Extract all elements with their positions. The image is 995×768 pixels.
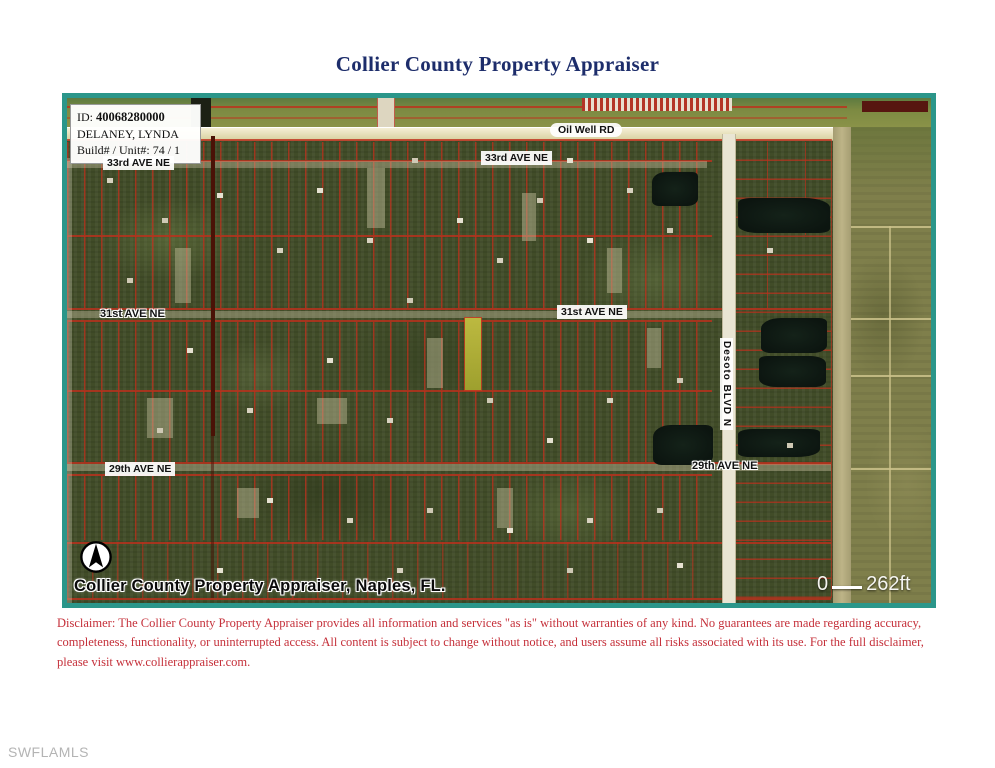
watermark: SWFLAMLS: [8, 744, 89, 760]
disclaimer-text: Disclaimer: The Collier County Property …: [57, 614, 937, 672]
buildings-layer: [67, 98, 73, 103]
field-line: [851, 468, 931, 470]
cleared-lot: [647, 328, 661, 368]
parcel-grid-lines: [67, 476, 712, 540]
pond: [761, 318, 827, 353]
dark-parcel-strip: [862, 101, 928, 112]
aerial-parcel-map: ID: 40068280000 DELANEY, LYNDA Build# / …: [62, 93, 936, 608]
street-label-desoto-blvd: Desoto BLVD N: [720, 338, 733, 430]
page-title: Collier County Property Appraiser: [0, 52, 995, 77]
field-line: [889, 226, 891, 603]
dark-boundary-line: [211, 436, 214, 598]
listing-map-page: Collier County Property Appraiser: [0, 0, 995, 768]
pond: [738, 198, 830, 233]
street-label-oil-well-rd: Oil Well RD: [550, 123, 622, 137]
cleared-lot: [427, 338, 443, 388]
cleared-lot: [175, 248, 191, 303]
parcel-line: [67, 542, 831, 544]
cleared-lot: [367, 168, 385, 228]
field-line: [851, 226, 931, 228]
scale-zero: 0: [817, 573, 828, 596]
scale-line: [832, 586, 862, 590]
farmland-area: [851, 127, 931, 603]
info-owner: DELANEY, LYNDA: [77, 126, 195, 142]
pond: [738, 429, 820, 457]
parcel-line: [67, 308, 831, 310]
cleared-lot: [497, 488, 513, 528]
street-label-31st-ave-left: 31st AVE NE: [100, 308, 165, 320]
cleared-lot: [522, 193, 536, 241]
map-canvas: ID: 40068280000 DELANEY, LYNDA Build# / …: [67, 98, 931, 603]
parcel-grid-lines: [67, 162, 712, 235]
north-arrow-icon: [79, 540, 113, 574]
info-id-line: ID: 40068280000: [77, 109, 195, 126]
pond: [652, 172, 698, 206]
pond: [759, 356, 826, 387]
parcel-grid-lines: [67, 322, 712, 390]
street-label-29th-ave-right: 29th AVE NE: [692, 460, 757, 472]
cleared-lot: [237, 488, 259, 518]
scale-distance: 262ft: [866, 573, 910, 596]
field-line: [851, 318, 931, 320]
street-label-33rd-ave-left: 33rd AVE NE: [103, 156, 174, 170]
subject-parcel-highlight: [465, 318, 481, 390]
cleared-lot: [607, 248, 622, 293]
cleared-lot: [317, 398, 347, 424]
street-label-33rd-ave-center: 33rd AVE NE: [481, 151, 552, 165]
parcel-line: [67, 390, 712, 392]
parcel-line: [67, 235, 712, 237]
narrow-parcel-strip: [582, 98, 732, 111]
street-label-31st-ave-center: 31st AVE NE: [557, 305, 627, 319]
scale-bar: 0 262ft: [817, 573, 911, 596]
dark-boundary-line: [211, 136, 215, 436]
street-label-29th-ave-left: 29th AVE NE: [105, 462, 175, 476]
map-attribution: Collier County Property Appraiser, Naple…: [74, 577, 446, 596]
pond: [653, 425, 713, 465]
parcel-line: [67, 598, 831, 600]
field-line: [851, 375, 931, 377]
cleared-lot: [147, 398, 173, 438]
west-edge-road: [67, 158, 72, 603]
farm-boundary-road: [833, 127, 851, 603]
parcel-line: [67, 320, 712, 322]
